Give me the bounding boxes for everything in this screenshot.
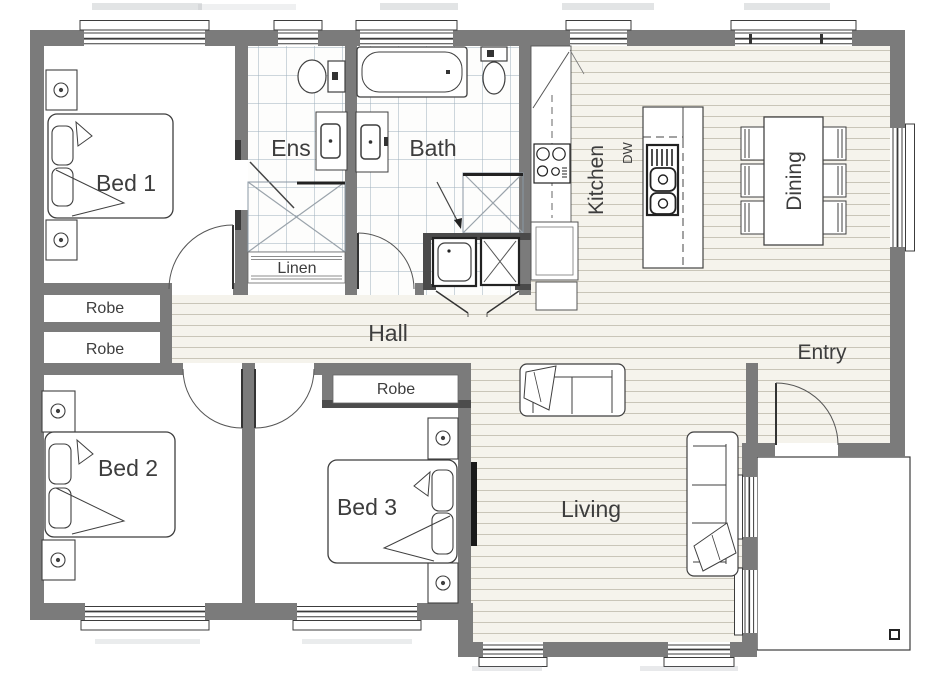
- bedside-table: [42, 540, 75, 580]
- toilet-icon: [298, 60, 345, 93]
- living-window: [664, 642, 734, 667]
- bedside-table: [428, 563, 458, 603]
- pillow: [52, 126, 73, 165]
- living-label: Living: [561, 496, 621, 522]
- bedside-table: [42, 391, 75, 432]
- sofa-3seat-icon: [687, 432, 738, 576]
- bed2-label: Bed 2: [98, 455, 158, 481]
- ens-door-jamb: [235, 140, 241, 160]
- hall-label: Hall: [368, 320, 408, 346]
- tv-icon: [471, 462, 477, 546]
- sofa-2seat-icon: [520, 364, 625, 416]
- kitchen-window: [566, 21, 631, 47]
- bedside-table: [46, 70, 77, 110]
- fridge-space: [531, 222, 578, 280]
- bed-icon: [45, 432, 175, 537]
- bed1-label: Bed 1: [96, 170, 156, 196]
- dining-side-window: [890, 124, 915, 251]
- living-window: [479, 642, 547, 667]
- kitchen-bench: [531, 46, 571, 222]
- toilet-icon: [481, 47, 507, 94]
- linen-label: Linen: [277, 260, 316, 277]
- bed2-door: [183, 369, 242, 428]
- vanity-sink-icon: [356, 112, 388, 172]
- porch: [757, 457, 910, 650]
- kitchen-island: [643, 107, 703, 268]
- dining-chair: [822, 201, 846, 234]
- living-porch-window: [735, 568, 758, 635]
- bed3-window: [293, 603, 421, 630]
- hall-floor: [172, 295, 890, 363]
- floor-plan-image: Bed 1 Ens Bath Kitchen DW Dining Linen R…: [0, 0, 950, 687]
- ens-door-jamb: [235, 210, 241, 230]
- bench-return: [536, 282, 577, 310]
- dining-chair: [822, 127, 846, 160]
- dining-chair: [741, 201, 765, 234]
- robe3-label: Robe: [377, 381, 415, 398]
- bed1-furniture: [46, 70, 173, 260]
- bed3-furniture: [328, 375, 458, 603]
- vanity-sink-icon: [316, 112, 347, 170]
- bed2-window: [81, 603, 209, 630]
- ens-label: Ens: [271, 135, 311, 161]
- bath-window: [356, 21, 457, 47]
- dw-label: DW: [620, 141, 635, 163]
- cooktop-icon: [534, 144, 570, 183]
- entry-floor: [758, 363, 890, 443]
- sink-icon: [647, 145, 678, 215]
- robe1-label: Robe: [86, 300, 124, 317]
- bed3-door: [255, 369, 314, 428]
- bedside-table: [46, 220, 77, 260]
- bed1-window: [80, 21, 209, 47]
- dining-chair: [741, 164, 765, 197]
- porch-post: [890, 630, 899, 639]
- robe2-label: Robe: [86, 341, 124, 358]
- dining-label: Dining: [783, 151, 806, 211]
- bath-label: Bath: [409, 135, 456, 161]
- bathtub-icon: [357, 47, 467, 97]
- laundry-tub-icon: [433, 238, 476, 286]
- bed2-furniture: [42, 391, 175, 580]
- dining-window: [731, 21, 856, 47]
- dining-chair: [822, 164, 846, 197]
- bed3-label: Bed 3: [337, 494, 397, 520]
- entry-label: Entry: [797, 341, 847, 364]
- washing-machine-icon: [481, 238, 519, 285]
- dining-chair: [741, 127, 765, 160]
- kitchen-label: Kitchen: [585, 145, 608, 215]
- bed-icon: [48, 114, 173, 218]
- bedside-table: [428, 418, 458, 459]
- pillow: [432, 470, 453, 511]
- laundry: [423, 233, 531, 290]
- pillow: [49, 444, 71, 484]
- floor-plan-drawing: Bed 1 Ens Bath Kitchen DW Dining Linen R…: [0, 0, 950, 687]
- ens-window: [274, 21, 322, 47]
- bed1-door: [169, 225, 233, 289]
